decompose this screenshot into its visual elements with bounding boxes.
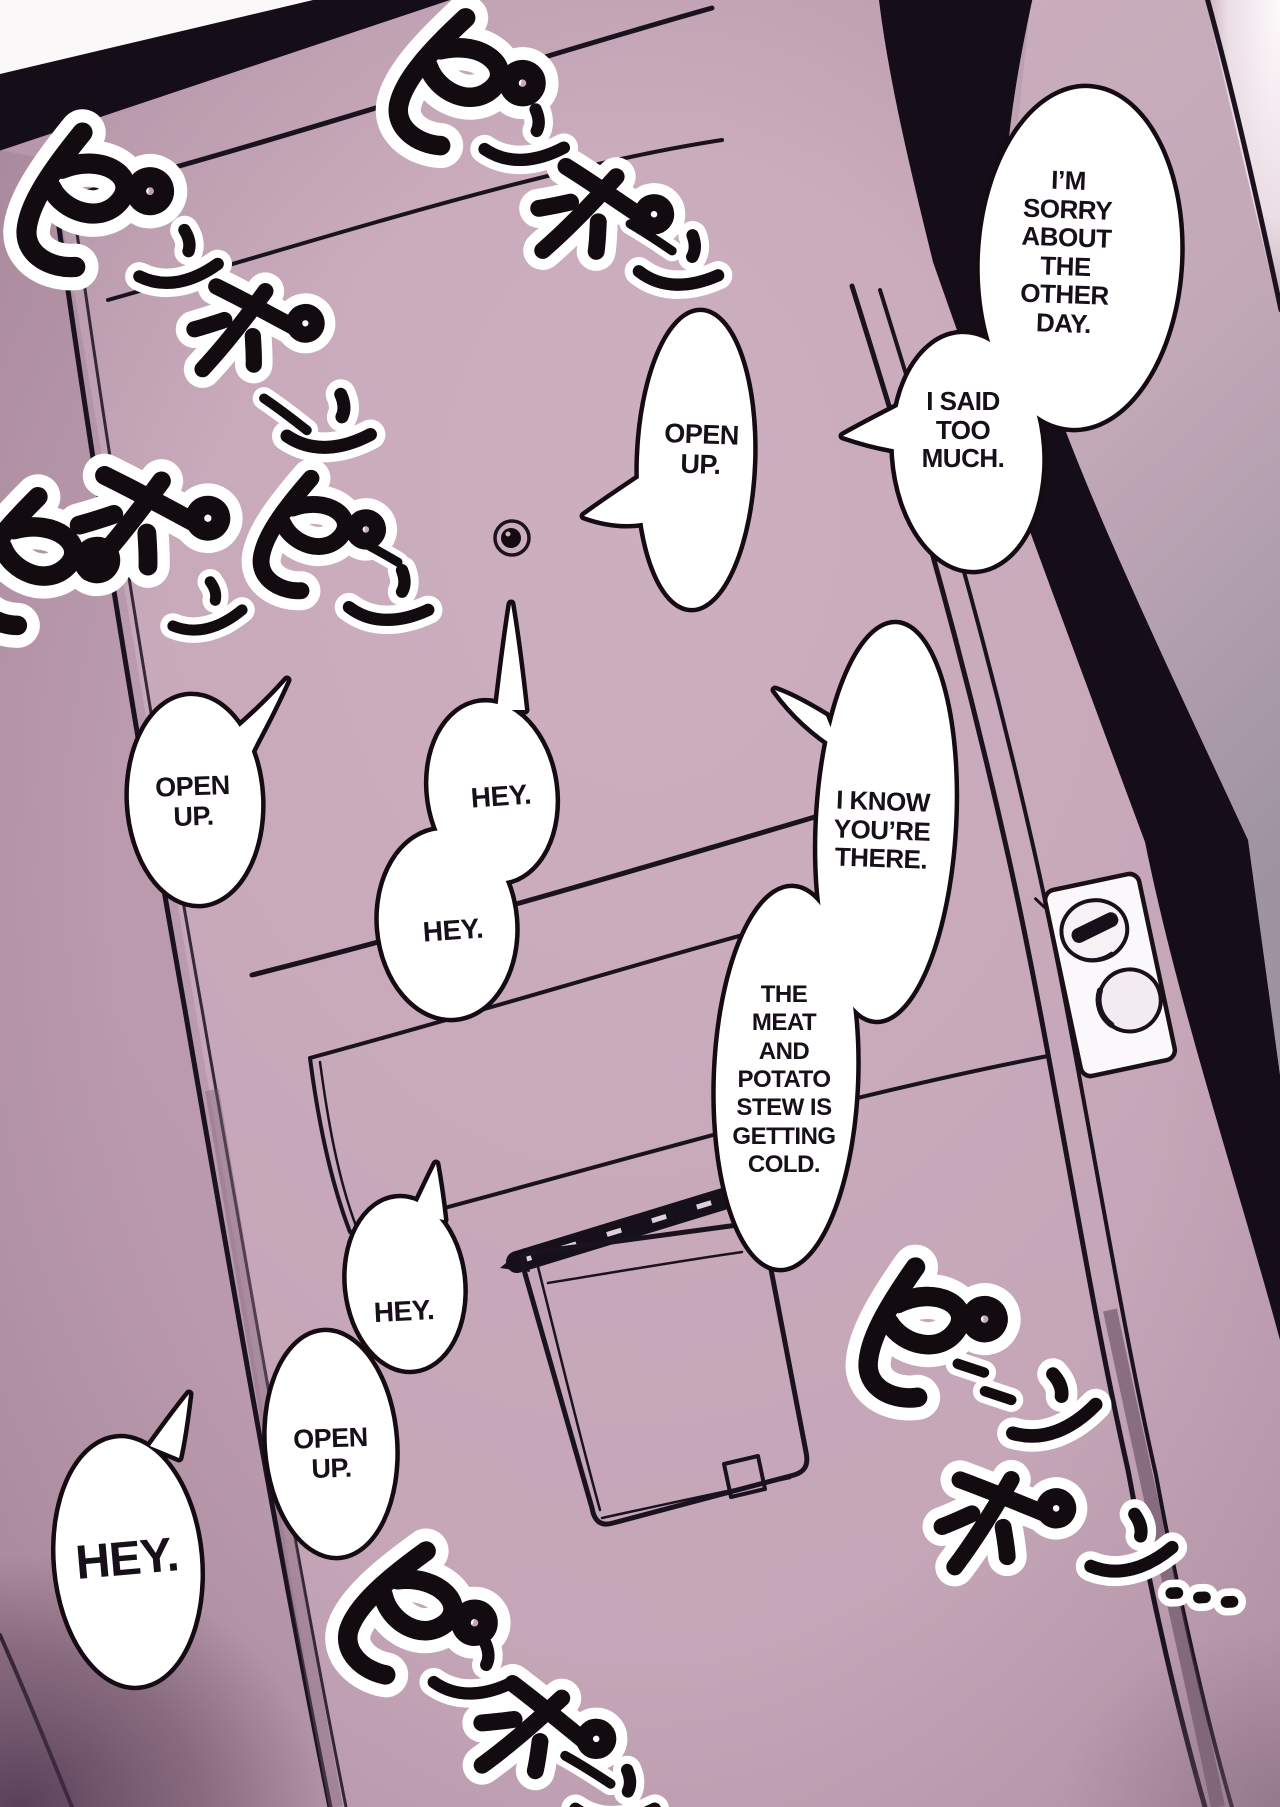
door-artwork [0,0,1280,1807]
manga-page: I’M SORRY ABOUT THE OTHER DAY. I SAID TO… [0,0,1280,1807]
